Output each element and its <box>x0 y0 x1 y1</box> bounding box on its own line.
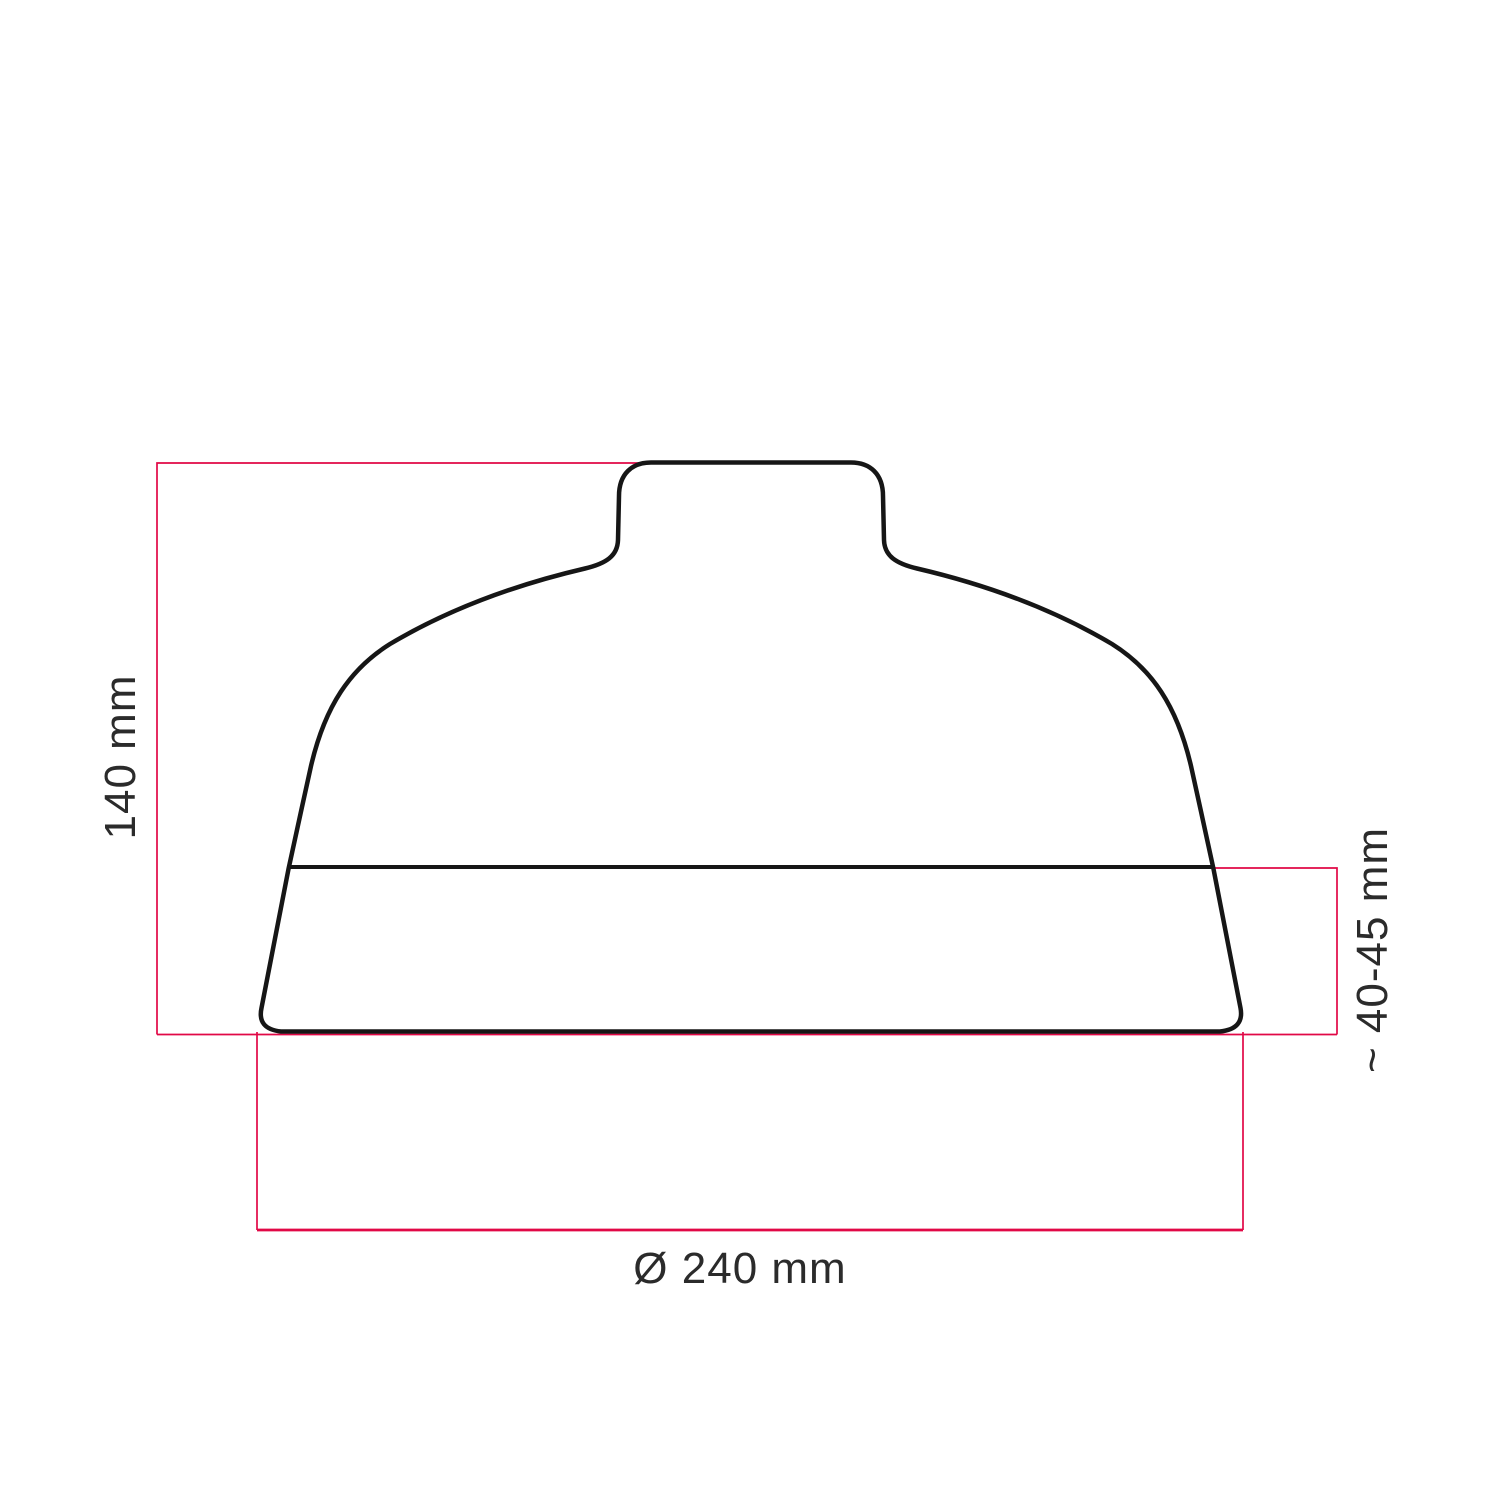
lampshade-group <box>261 463 1241 1032</box>
lampshade-dimension-drawing: 140 mm ~ 40-45 mm Ø 240 mm <box>0 0 1500 1500</box>
lampshade-outline <box>261 463 1241 1032</box>
dimension-drawing-canvas: 140 mm ~ 40-45 mm Ø 240 mm <box>0 0 1500 1500</box>
band-dimension-label: ~ 40-45 mm <box>1348 827 1397 1073</box>
height-dimension-label: 140 mm <box>96 675 145 840</box>
diameter-dimension-label: Ø 240 mm <box>633 1244 846 1293</box>
